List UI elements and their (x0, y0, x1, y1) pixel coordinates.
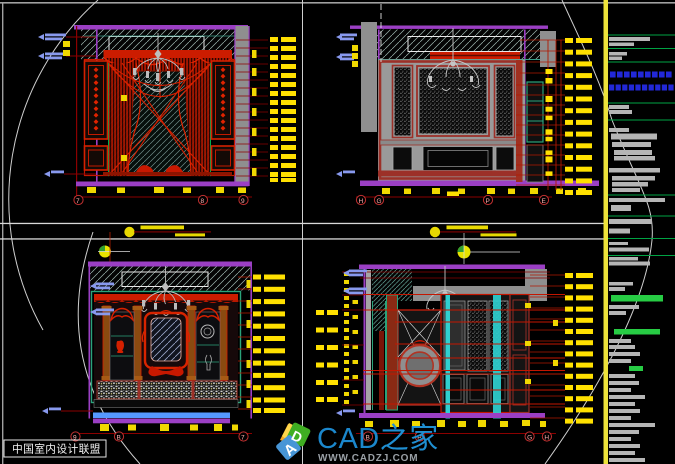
svg-text:G: G (377, 198, 382, 205)
svg-text:B: B (117, 435, 121, 442)
svg-text:CAD之家: CAD之家 (317, 422, 439, 455)
svg-text:E: E (542, 198, 547, 205)
svg-text:8: 8 (201, 198, 205, 205)
svg-text:P: P (486, 198, 490, 205)
svg-text:9: 9 (241, 198, 245, 205)
svg-text:7: 7 (241, 435, 245, 442)
svg-text:H: H (544, 435, 549, 442)
svg-text:7: 7 (76, 198, 80, 205)
svg-text:H: H (359, 198, 364, 205)
svg-text:WWW.CADZJ.COM: WWW.CADZJ.COM (318, 453, 418, 464)
svg-text:中国室内设计联盟: 中国室内设计联盟 (12, 442, 101, 456)
svg-text:G: G (527, 435, 532, 442)
